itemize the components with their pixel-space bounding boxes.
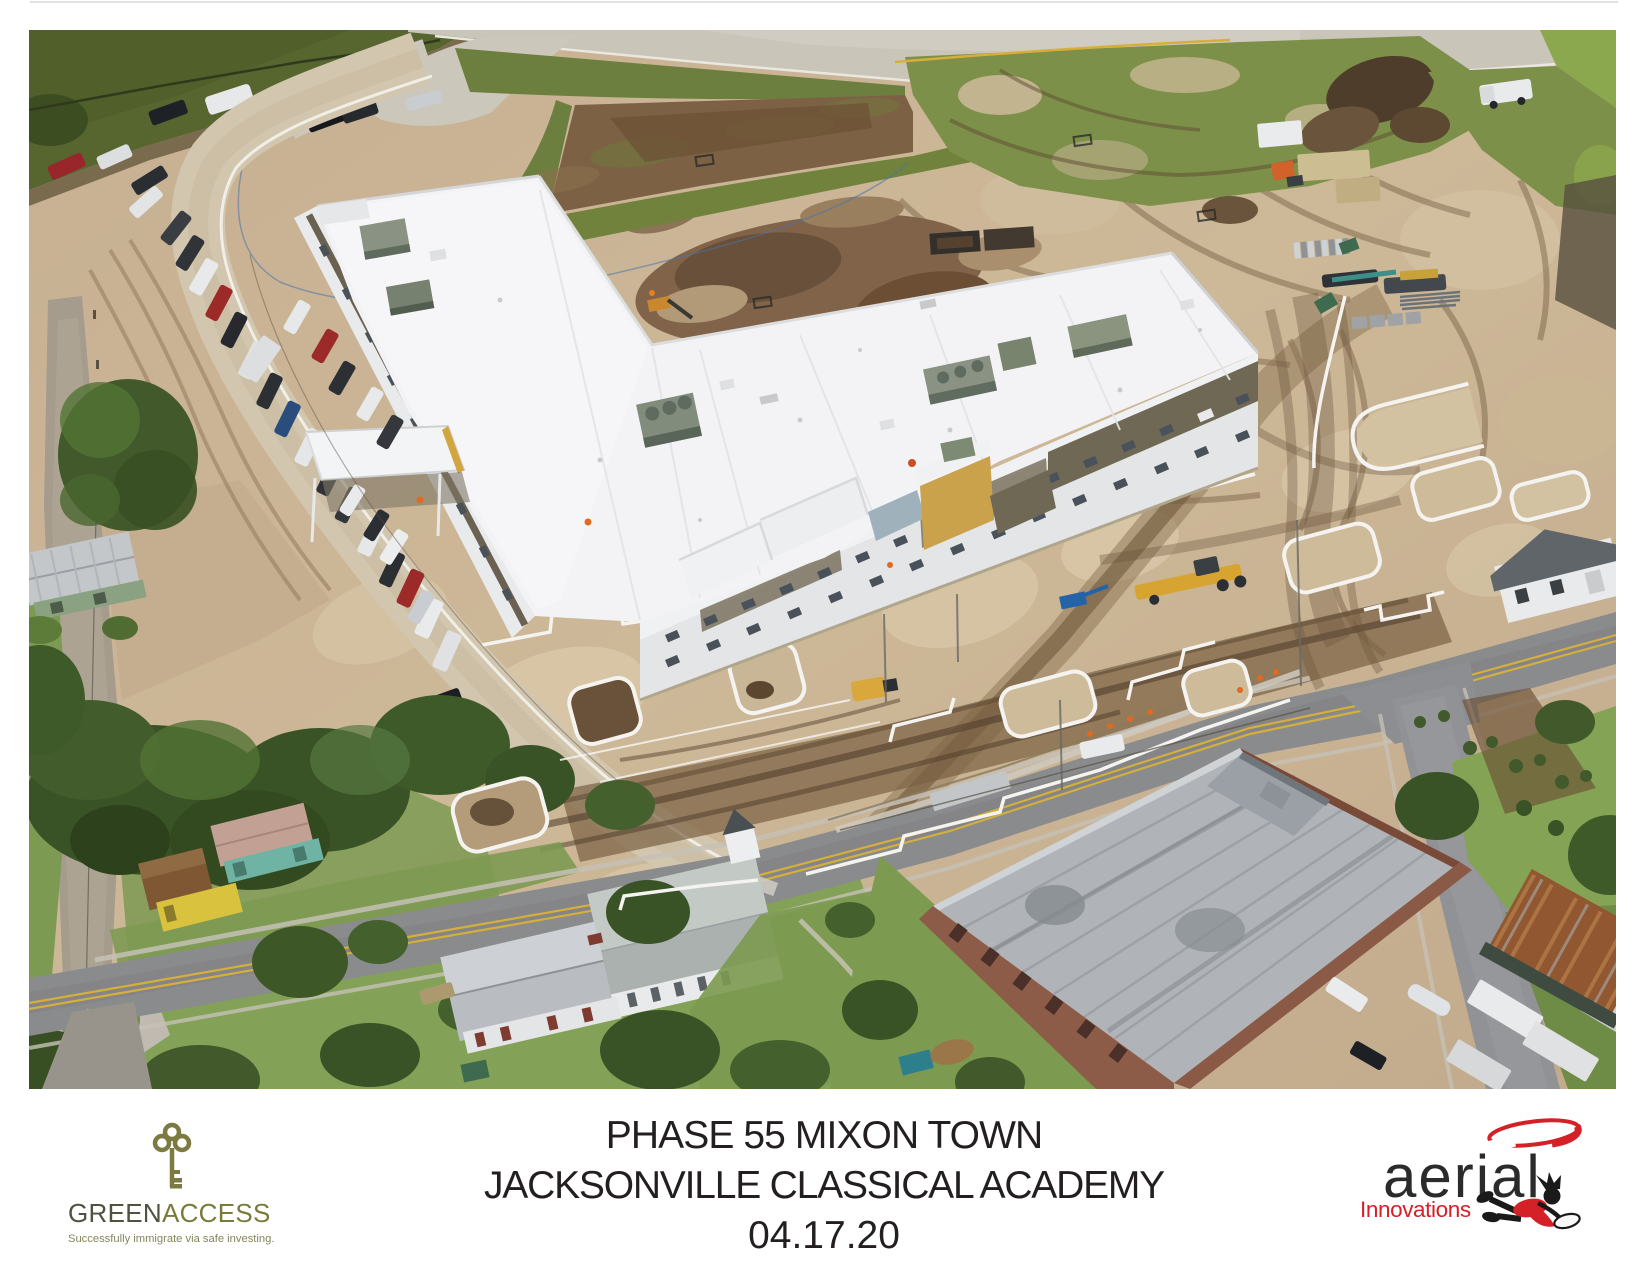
svg-text:GREENACCESS: GREENACCESS: [68, 1198, 271, 1228]
svg-text:Innovations: Innovations: [1360, 1197, 1471, 1222]
svg-text:Successfully immigrate via saf: Successfully immigrate via safe investin…: [68, 1233, 274, 1245]
svg-text:04.17.20: 04.17.20: [748, 1214, 900, 1257]
svg-text:PHASE 55 MIXON TOWN: PHASE 55 MIXON TOWN: [606, 1114, 1043, 1157]
svg-text:JACKSONVILLE CLASSICAL ACADEMY: JACKSONVILLE CLASSICAL ACADEMY: [484, 1164, 1165, 1207]
